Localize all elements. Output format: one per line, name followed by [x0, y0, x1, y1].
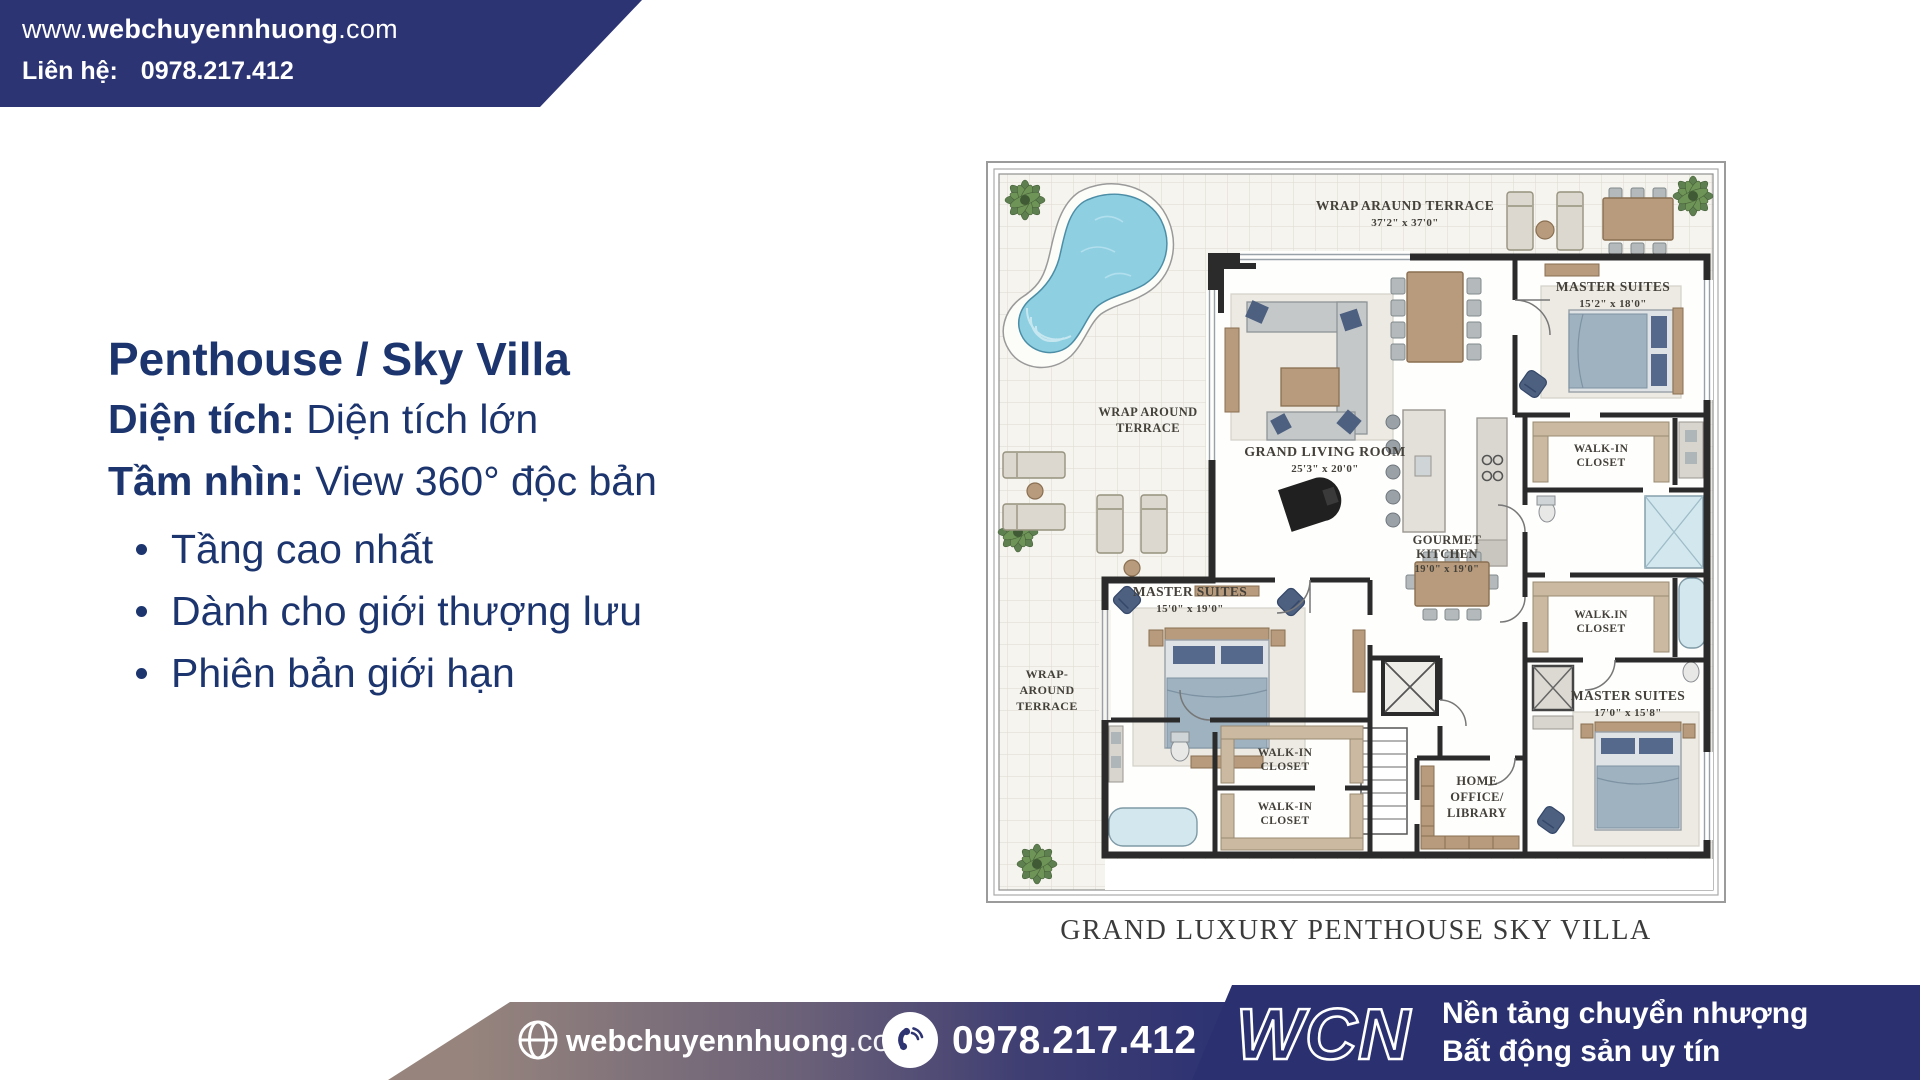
- room-label: CLOSET: [1260, 815, 1309, 827]
- room-label: WRAP AROUND: [1098, 405, 1197, 419]
- footer-website: webchuyennhuong.com: [566, 1002, 916, 1080]
- feature-list: Tầng cao nhất Dành cho giới thượng lưu P…: [108, 518, 748, 704]
- tagline-line: Bất động sản uy tín: [1442, 1033, 1808, 1071]
- room-dims: 15'0" x 19'0": [1156, 603, 1224, 615]
- room-dims: 17'0" x 15'8": [1594, 707, 1662, 719]
- bullet-icon: [136, 544, 147, 555]
- view-value: View 360° độc bản: [315, 458, 657, 504]
- list-item: Tầng cao nhất: [108, 518, 748, 580]
- room-label: GRAND LIVING ROOM: [1244, 445, 1406, 460]
- floor-plan-drawing: WRAP ARAUND TERRACE 37'2" x 37'0" WRAP A…: [985, 160, 1727, 908]
- contact-phone: 0978.217.412: [141, 57, 294, 85]
- header-banner: www.webchuyennhuong.com Liên hệ: 0978.21…: [0, 0, 642, 107]
- room-label: HOME: [1456, 774, 1497, 788]
- plant-icon: [1673, 176, 1713, 216]
- floor-plan: WRAP ARAUND TERRACE 37'2" x 37'0" WRAP A…: [985, 160, 1727, 908]
- url-prefix: www.: [22, 14, 88, 44]
- room-label: WALK-IN: [1258, 801, 1313, 813]
- room-dims: 15'2" x 18'0": [1579, 298, 1647, 310]
- brand-taglines: Nền tảng chuyển nhượng Bất động sản uy t…: [1442, 995, 1808, 1071]
- room-label: KITCHEN: [1416, 547, 1478, 561]
- room-dims: 19'0" x 19'0": [1415, 564, 1480, 575]
- area-value: Diện tích lớn: [306, 396, 538, 442]
- room-label: CLOSET: [1576, 457, 1625, 469]
- brand-panel: WCN Nền tảng chuyển nhượng Bất động sản …: [1180, 985, 1920, 1080]
- room-label: WALK-IN: [1574, 443, 1629, 455]
- website-url: www.webchuyennhuong.com: [22, 14, 398, 45]
- list-item: Dành cho giới thượng lưu: [108, 580, 748, 642]
- elevator-icon: [1383, 660, 1437, 714]
- room-label: OFFICE/: [1450, 790, 1504, 804]
- plant-icon: [1017, 844, 1057, 884]
- url-name: webchuyennhuong: [88, 14, 339, 44]
- wcn-logo-text: WCN: [1236, 995, 1412, 1075]
- view-line: Tầm nhìn: View 360° độc bản: [108, 450, 748, 512]
- property-highlights: Penthouse / Sky Villa Diện tích: Diện tí…: [108, 330, 748, 704]
- utility-shaft-icon: [1533, 666, 1573, 710]
- contact-line: Liên hệ: 0978.217.412: [22, 57, 294, 86]
- property-title: Penthouse / Sky Villa: [108, 330, 748, 388]
- room-label: WRAP-: [1026, 667, 1069, 681]
- bullet-icon: [136, 668, 147, 679]
- room-label: LIBRARY: [1447, 806, 1507, 820]
- feature-text: Tầng cao nhất: [171, 518, 433, 580]
- room-label: GOURMET: [1413, 533, 1482, 547]
- room-label: CLOSET: [1260, 761, 1309, 773]
- feature-text: Phiên bản giới hạn: [171, 642, 515, 704]
- room-label: AROUND: [1019, 683, 1074, 697]
- view-label: Tầm nhìn:: [108, 458, 304, 504]
- bullet-icon: [136, 606, 147, 617]
- list-item: Phiên bản giới hạn: [108, 642, 748, 704]
- plan-title: GRAND LUXURY PENTHOUSE SKY VILLA: [985, 915, 1727, 947]
- area-label: Diện tích:: [108, 396, 295, 442]
- room-label: TERRACE: [1016, 699, 1077, 713]
- room-label: WRAP ARAUND TERRACE: [1316, 198, 1494, 213]
- plant-icon: [1005, 180, 1045, 220]
- marketing-page: www.webchuyennhuong.com Liên hệ: 0978.21…: [0, 0, 1920, 1080]
- footer-phone-number: 0978.217.412: [952, 1002, 1197, 1080]
- terrace-dining-set: [1603, 188, 1673, 254]
- feature-text: Dành cho giới thượng lưu: [171, 580, 642, 642]
- url-suffix: .com: [338, 14, 398, 44]
- wcn-logo: WCN: [1234, 991, 1420, 1075]
- phone-icon: [882, 1012, 938, 1068]
- room-dims: 25'3" x 20'0": [1291, 463, 1359, 475]
- room-label: TERRACE: [1116, 421, 1180, 435]
- room-label: MASTER SUITES: [1133, 584, 1247, 599]
- room-label: CLOSET: [1576, 623, 1625, 635]
- room-label: WALK-IN: [1258, 747, 1313, 759]
- area-line: Diện tích: Diện tích lớn: [108, 388, 748, 450]
- room-dims: 37'2" x 37'0": [1371, 217, 1439, 229]
- contact-label: Liên hệ:: [22, 57, 118, 85]
- footer-site-name: webchuyennhuong: [566, 1023, 848, 1059]
- tagline-line: Nền tảng chuyển nhượng: [1442, 995, 1808, 1033]
- room-label: WALK.IN: [1574, 609, 1628, 621]
- room-label: MASTER SUITES: [1571, 688, 1685, 703]
- globe-icon: [516, 1018, 560, 1062]
- room-label: MASTER SUITES: [1556, 279, 1670, 294]
